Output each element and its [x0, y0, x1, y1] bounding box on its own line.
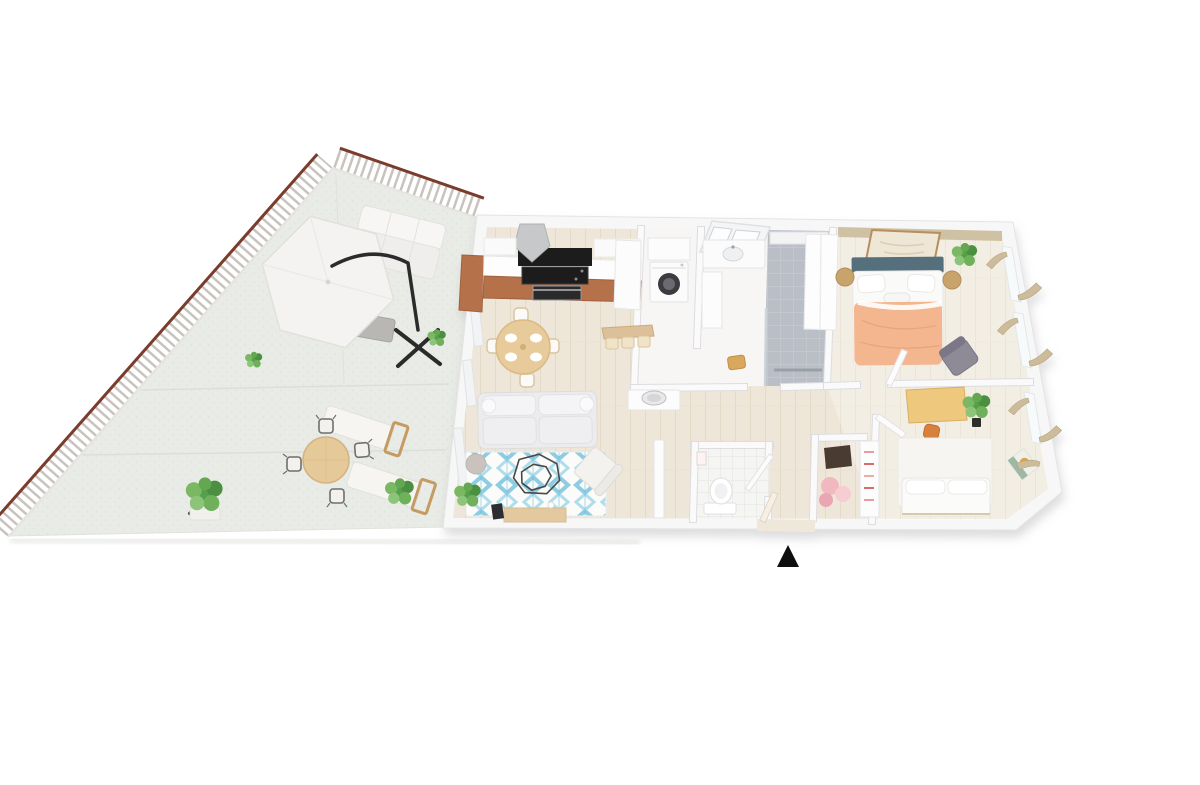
terrace-curb [10, 540, 640, 543]
wc-wall-frame [697, 452, 706, 465]
duvet [854, 302, 943, 366]
open-door-slab [654, 440, 664, 518]
tall-cabinet [702, 272, 722, 328]
upper-cabinet [484, 238, 516, 255]
entry-bench [602, 325, 654, 349]
floor-plan-render [0, 0, 1200, 785]
glass-partition [765, 308, 766, 386]
double-bed [852, 257, 945, 366]
closet-clothes [819, 493, 833, 507]
laundry-closet [648, 238, 690, 302]
stool [727, 355, 746, 370]
apartment [443, 215, 1062, 532]
pillow-roll [884, 293, 910, 303]
nightstand-left [836, 268, 854, 286]
washing-machine [650, 262, 688, 302]
plant-large [186, 477, 223, 520]
sink [723, 247, 743, 261]
kitchen-cabinet-left-return [459, 255, 484, 312]
wardrobe [804, 234, 838, 330]
pillow [857, 274, 885, 293]
daybed-sofa [902, 478, 990, 516]
cooktop [522, 267, 588, 284]
wall-cabinet [648, 238, 690, 260]
closet-bag [824, 445, 852, 469]
oven [533, 286, 581, 300]
closet-clothes [835, 486, 851, 502]
pouf [466, 454, 486, 474]
console-table [628, 390, 680, 410]
entrance-marker [777, 545, 799, 567]
leaning-art [491, 503, 504, 519]
floor-plan-stage [0, 0, 1200, 785]
desk [906, 387, 967, 423]
kitchen-tall-unit [614, 240, 641, 310]
pillow [907, 274, 935, 293]
sofa [478, 391, 598, 449]
nightstand-right [943, 271, 961, 289]
shoe-rack [860, 441, 879, 517]
